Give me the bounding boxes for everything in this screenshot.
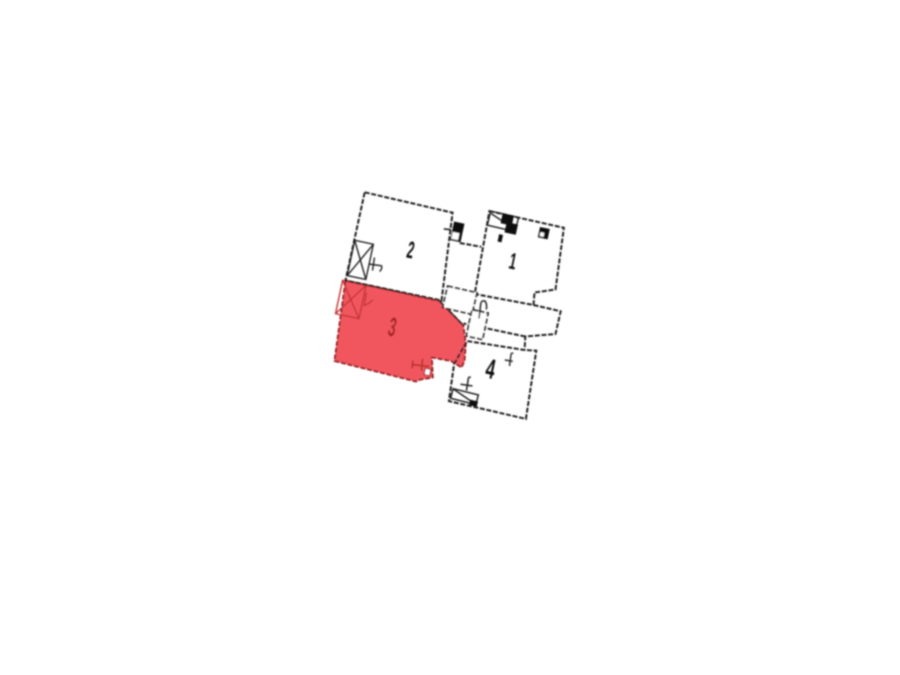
svg-text:2: 2 [404, 238, 416, 265]
svg-text:1: 1 [507, 248, 519, 275]
svg-text:4: 4 [483, 352, 499, 385]
